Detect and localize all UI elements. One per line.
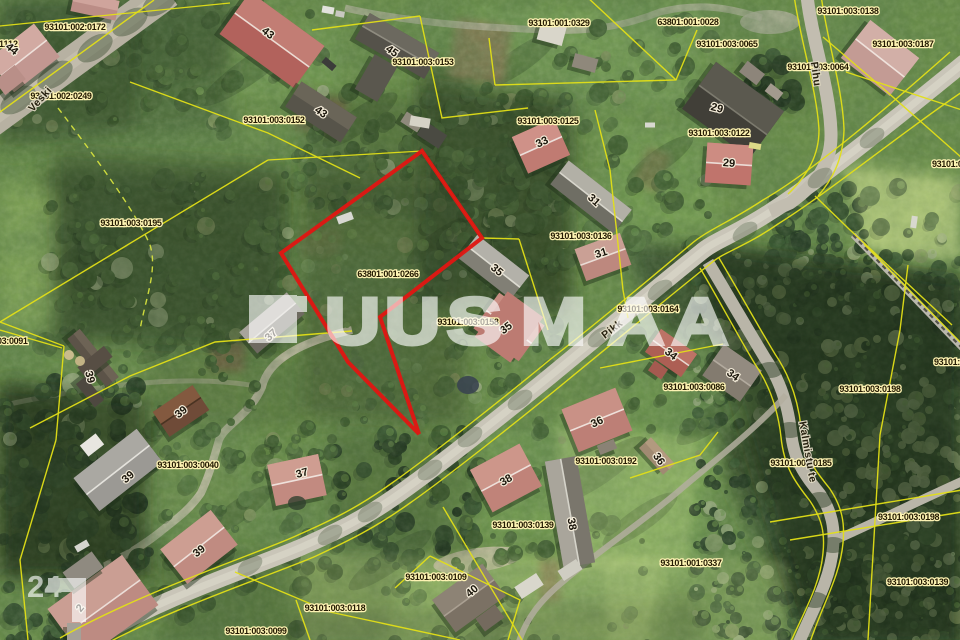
svg-text:93101:002:0172: 93101:002:0172 <box>44 22 106 32</box>
svg-text:93101:003:0138: 93101:003:0138 <box>817 6 879 16</box>
svg-text:93101:003:0086: 93101:003:0086 <box>663 382 725 392</box>
svg-text:93101:003:0099: 93101:003:0099 <box>225 626 287 636</box>
svg-text:63801:001:0266: 63801:001:0266 <box>357 269 419 279</box>
svg-text:93101:003:0118: 93101:003:0118 <box>305 603 366 613</box>
svg-text:93101:003:0187: 93101:003:0187 <box>872 39 934 49</box>
svg-text:93101:003:0153: 93101:003:0153 <box>392 57 454 67</box>
svg-text:93101:003:0136: 93101:003:0136 <box>550 231 612 241</box>
svg-text:93101:003:0139: 93101:003:0139 <box>887 577 949 587</box>
svg-text:63801:001:0028: 63801:001:0028 <box>657 17 719 27</box>
svg-text:93101:003:0198: 93101:003:0198 <box>878 512 940 522</box>
svg-text:93101:001:0329: 93101:001:0329 <box>528 18 590 28</box>
svg-text:93101:003:0152: 93101:003:0152 <box>243 115 305 125</box>
svg-text:S: S <box>447 284 502 358</box>
svg-text:A: A <box>608 284 664 358</box>
svg-text:93101:003:0139: 93101:003:0139 <box>492 520 554 530</box>
svg-text:93101:003:0187: 93101:003:0187 <box>934 357 960 367</box>
svg-text:93101:003:0109: 93101:003:0109 <box>405 572 467 582</box>
svg-text:29: 29 <box>722 157 735 170</box>
svg-text:A: A <box>672 284 728 358</box>
svg-text:93101:003:0185: 93101:003:0185 <box>770 458 832 468</box>
svg-text:93101:003:0065: 93101:003:0065 <box>696 39 758 49</box>
svg-text:93101:003:0122: 93101:003:0122 <box>688 128 750 138</box>
svg-text:93101:001:0337: 93101:001:0337 <box>660 558 722 568</box>
svg-text:93101:003:0040: 93101:003:0040 <box>157 460 219 470</box>
svg-text:38: 38 <box>565 517 579 531</box>
svg-text:93101:003:0195: 93101:003:0195 <box>100 218 162 228</box>
svg-text:93101:003:0125: 93101:003:0125 <box>517 116 579 126</box>
svg-text:93101:003:0138: 93101:003:0138 <box>932 159 960 169</box>
svg-text:U: U <box>385 284 440 358</box>
svg-text:M: M <box>521 284 586 358</box>
svg-text:U: U <box>325 284 380 358</box>
svg-text:93101:003:0091: 93101:003:0091 <box>0 336 28 346</box>
svg-text:93101:003:0198: 93101:003:0198 <box>839 384 901 394</box>
svg-text:93101:003:0192: 93101:003:0192 <box>575 456 637 466</box>
